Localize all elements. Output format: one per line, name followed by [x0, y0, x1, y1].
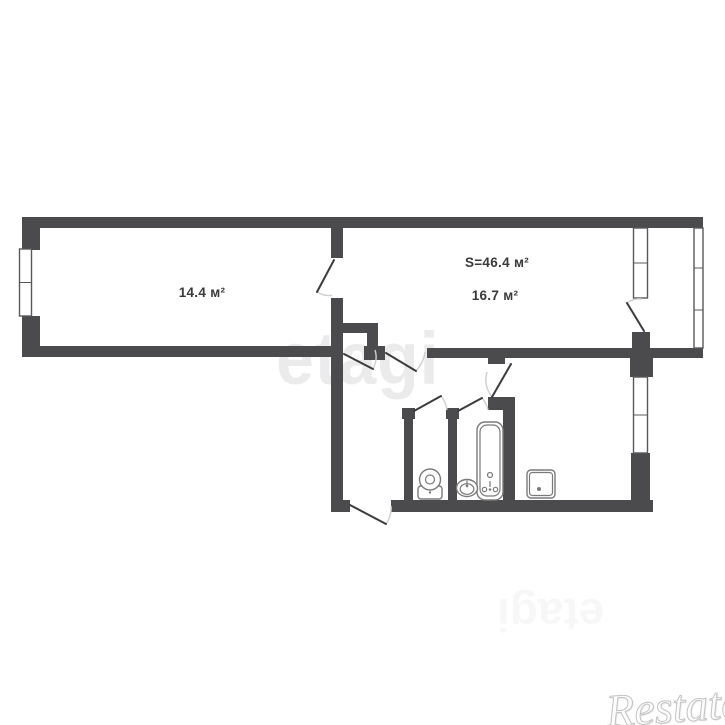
door-kitchen: [486, 364, 511, 397]
wall-segment: [331, 228, 343, 258]
stove-icon: [527, 470, 555, 498]
door-bath: [458, 398, 488, 411]
door-between-rooms: [317, 260, 334, 296]
wall-segment: [391, 500, 653, 512]
room1-area-label: 14.4 м²: [179, 285, 226, 300]
wall-segment: [367, 333, 378, 346]
sink-icon: [457, 480, 478, 497]
floor-plan-canvas: etagi: [0, 0, 725, 725]
wall-segment: [404, 412, 413, 500]
toilet-icon: [418, 469, 442, 499]
wall-segment: [331, 500, 350, 512]
wall-segment: [343, 323, 378, 333]
door-room2: [386, 352, 425, 371]
wall-segment: [364, 346, 385, 360]
wall-segment: [22, 346, 343, 357]
window-balcony-outer: [694, 228, 703, 348]
window-left: [20, 249, 32, 316]
restate-watermark: Restate: [605, 679, 725, 725]
window-kitchen: [634, 377, 648, 453]
wall-segment: [22, 228, 40, 250]
wall-segment: [427, 348, 703, 358]
wall-segment: [503, 410, 515, 500]
fixtures: [418, 422, 555, 500]
total-area-label: S=46.4 м²: [465, 255, 529, 270]
door-wc: [414, 396, 447, 411]
wall-segment: [488, 397, 515, 410]
door-entrance: [350, 505, 391, 524]
windows: [20, 228, 704, 453]
window-balcony-partition: [634, 228, 648, 298]
bathtub-icon: [477, 422, 503, 500]
faint-watermark: etagi: [497, 592, 604, 638]
wall-segment: [488, 348, 505, 364]
wall-segment: [331, 298, 343, 512]
floor-plan-svg: 14.4 м² S=46.4 м² 16.7 м²: [0, 0, 725, 725]
wall-segment: [448, 412, 457, 500]
room2-area-label: 16.7 м²: [472, 288, 519, 303]
wall-segment: [22, 217, 703, 228]
wall-segment: [632, 332, 650, 377]
door-balcony: [627, 299, 644, 331]
